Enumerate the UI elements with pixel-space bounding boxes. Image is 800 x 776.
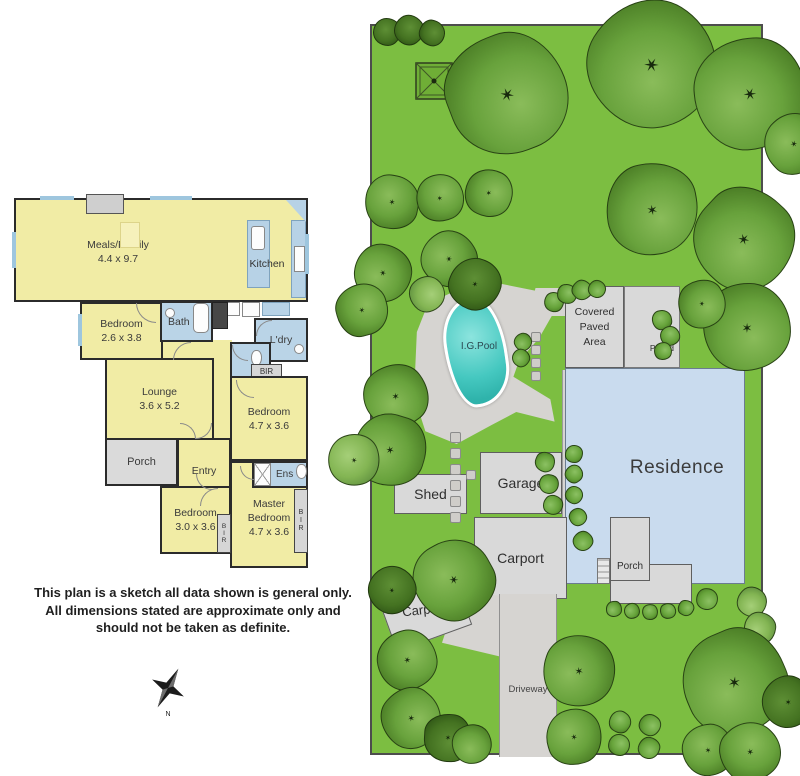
- porch-steps: [597, 558, 610, 584]
- tree-branch-mark: ✶: [387, 585, 396, 596]
- meals-family-dims: 4.4 x 9.7: [98, 252, 138, 266]
- driveway-label-text: Driveway: [508, 684, 547, 695]
- pool-label-text: I.G.Pool: [461, 341, 497, 352]
- master-name-2: Bedroom: [248, 511, 291, 525]
- bir-master: B I R: [294, 489, 308, 553]
- tree-branch-mark: ✶: [704, 745, 712, 755]
- tree: ✶: [429, 16, 584, 171]
- tree-branch-mark: ✶: [357, 306, 367, 315]
- stepping-stone: [531, 358, 541, 368]
- tree-branch-mark: ✶: [349, 455, 358, 466]
- covered-label-line: Area: [575, 335, 615, 350]
- tree-branch-mark: ✶: [484, 188, 495, 197]
- tree-branch-mark: ✶: [571, 665, 586, 678]
- bench: [262, 302, 290, 316]
- bir-letter: R: [298, 525, 303, 533]
- stepping-stone: [450, 512, 461, 523]
- site-porch-label: Porch: [617, 561, 643, 572]
- bush: [640, 602, 659, 621]
- tree-branch-mark: ✶: [382, 444, 397, 456]
- site-porch: Porch: [610, 517, 650, 581]
- porch-name: Porch: [127, 455, 156, 469]
- tree-branch-mark: ✶: [389, 390, 403, 403]
- bedroom-3-dims: 3.0 x 3.6: [175, 520, 215, 534]
- tree-branch-mark: ✶: [741, 319, 752, 335]
- kitchen-name: Kitchen: [249, 258, 284, 270]
- stepping-stone: [450, 480, 461, 491]
- fireplace: [86, 194, 124, 214]
- bir-bedroom-3: B I R: [217, 514, 231, 553]
- room-label-kitchen: Kitchen: [238, 258, 296, 270]
- room-porch: Porch: [105, 438, 178, 486]
- tree: ✶: [360, 170, 423, 233]
- disclaimer-line-3: should not be taken as definite.: [28, 619, 358, 637]
- tree-branch-mark: ✶: [445, 733, 451, 742]
- laundry-trough: [294, 344, 304, 354]
- tree-branch-mark: ✶: [733, 228, 754, 250]
- kitchen-sink: [251, 226, 265, 250]
- bedroom-1-name: Bedroom: [100, 317, 143, 331]
- bush: [606, 601, 623, 618]
- window-marker: [305, 234, 309, 274]
- tree-branch-mark: ✶: [443, 253, 454, 265]
- tree-branch-mark: ✶: [788, 137, 800, 150]
- room-label-meals-family: Meals/Family 4.4 x 9.7: [38, 234, 198, 270]
- tree-branch-mark: ✶: [724, 672, 747, 691]
- tree-branch-mark: ✶: [435, 193, 446, 202]
- bedroom-2-name: Bedroom: [248, 405, 291, 419]
- tree-branch-mark: ✶: [377, 269, 389, 277]
- stepping-stone: [466, 470, 476, 480]
- bir-hall-label: BIR: [260, 367, 273, 376]
- skylight: [120, 222, 140, 248]
- tree-branch-mark: ✶: [639, 50, 665, 79]
- shed-label: Shed: [414, 486, 447, 502]
- disclaimer-text: This plan is a sketch all data shown is …: [28, 584, 358, 637]
- tree-branch-mark: ✶: [470, 279, 479, 290]
- tree-branch-mark: ✶: [743, 745, 756, 758]
- bedroom-2-dims: 4.7 x 3.6: [249, 419, 289, 433]
- laundry-name: L'dry: [270, 333, 292, 347]
- tree-branch-mark: ✶: [739, 86, 761, 102]
- residence: Residence: [565, 368, 745, 584]
- bush: [635, 710, 666, 741]
- stepping-stone: [531, 345, 541, 355]
- pool-label: I.G.Pool: [444, 341, 514, 352]
- tree-branch-mark: ✶: [401, 655, 413, 665]
- tree-branch-mark: ✶: [496, 81, 518, 106]
- covered-label-line: Covered: [575, 305, 615, 320]
- tree-branch-mark: ✶: [782, 697, 793, 707]
- stepping-stone: [450, 464, 461, 475]
- stepping-stone: [531, 371, 541, 381]
- bir-letter: R: [222, 537, 227, 544]
- garage-label: Garage: [498, 475, 545, 491]
- lounge-name: Lounge: [142, 385, 177, 399]
- tree-branch-mark: ✶: [645, 200, 659, 218]
- ensuite-toilet: [296, 464, 307, 479]
- floorplan-siteplan-sheet: Meals/Family 4.4 x 9.7 Kitchen Bedroom 2…: [0, 0, 800, 776]
- window-marker: [12, 232, 16, 268]
- residence-label: Residence: [612, 457, 742, 479]
- bedroom-3-name: Bedroom: [174, 506, 217, 520]
- disclaimer-line-2: All dimensions stated are approximate on…: [28, 602, 358, 620]
- site-plan: I.G.Pool Residence Covered Paved Area Pa…: [370, 24, 763, 755]
- bathtub: [193, 303, 209, 333]
- compass-north-label: N: [146, 711, 190, 718]
- tree-branch-mark: ✶: [446, 571, 462, 588]
- bush: [608, 734, 631, 757]
- shower: [212, 302, 228, 329]
- north-arrow-icon: [146, 666, 190, 710]
- window-marker: [150, 196, 192, 200]
- ensuite-name: Ens: [276, 468, 293, 482]
- stepping-stone: [450, 496, 461, 507]
- window-marker: [78, 314, 82, 346]
- appliance: [242, 302, 260, 317]
- bir-letter: I: [223, 530, 225, 537]
- compass-rose: N: [146, 666, 190, 722]
- covered-label-line: Paved: [575, 320, 615, 335]
- bush: [695, 587, 720, 612]
- carport-upper-label: Carport: [497, 550, 544, 566]
- bush: [605, 707, 636, 738]
- disclaimer-line-1: This plan is a sketch all data shown is …: [28, 584, 358, 602]
- master-dims: 4.7 x 3.6: [249, 525, 289, 539]
- tree-branch-mark: ✶: [404, 712, 417, 725]
- bir-letter: B: [299, 509, 304, 517]
- tree: ✶: [457, 161, 522, 226]
- ensuite-shower: [254, 463, 271, 486]
- stepping-stone: [450, 448, 461, 459]
- basin: [165, 308, 175, 318]
- bir-letter: I: [300, 517, 302, 525]
- stepping-stone: [531, 332, 541, 342]
- lounge-dims: 3.6 x 5.2: [139, 399, 179, 413]
- tree-branch-mark: ✶: [697, 299, 707, 310]
- tree-branch-mark: ✶: [388, 196, 397, 207]
- covered-paved-area-label: Covered Paved Area: [575, 305, 615, 350]
- room-label-porch: Porch: [107, 440, 176, 484]
- master-name-1: Master: [253, 497, 285, 511]
- window-marker: [40, 196, 74, 200]
- stepping-stone: [450, 432, 461, 443]
- tree-branch-mark: ✶: [569, 731, 579, 743]
- tree: ✶: [599, 156, 706, 263]
- bir-letter: B: [222, 523, 226, 530]
- bedroom-1-dims: 2.6 x 3.8: [101, 331, 141, 345]
- tree: ✶: [408, 166, 472, 230]
